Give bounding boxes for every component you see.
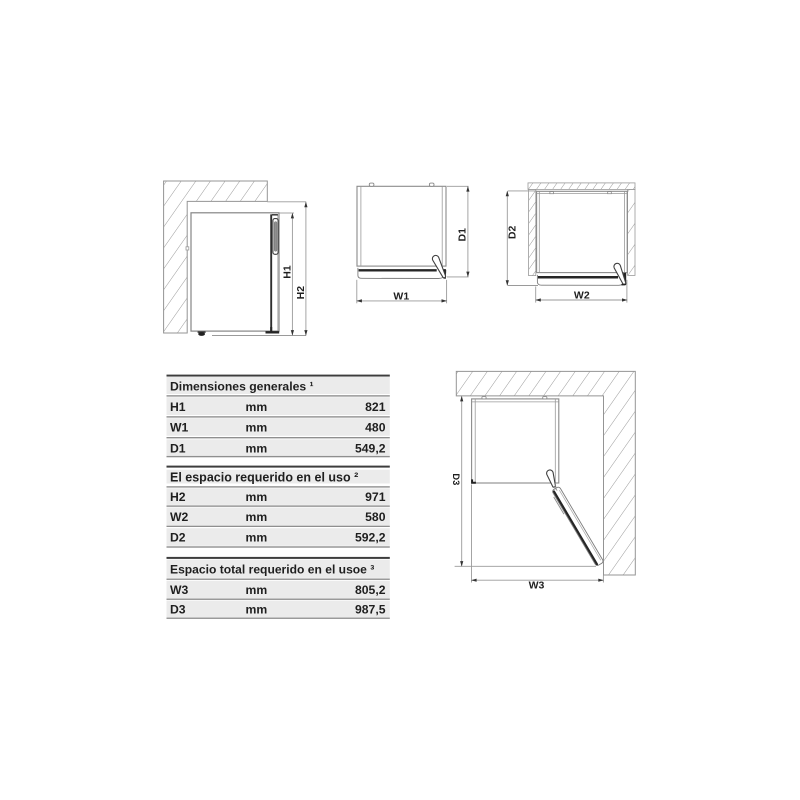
svg-text:592,2: 592,2 <box>355 531 386 545</box>
svg-text:mm: mm <box>246 490 268 504</box>
svg-text:W2: W2 <box>170 510 189 524</box>
svg-text:549,2: 549,2 <box>355 441 386 455</box>
svg-text:mm: mm <box>246 421 268 435</box>
svg-text:H2: H2 <box>295 286 307 300</box>
svg-text:mm: mm <box>246 531 268 545</box>
svg-text:mm: mm <box>246 583 268 597</box>
svg-text:480: 480 <box>365 421 386 435</box>
svg-text:mm: mm <box>246 441 268 455</box>
svg-text:805,2: 805,2 <box>355 583 386 597</box>
svg-text:mm: mm <box>246 510 268 524</box>
svg-text:Espacio total requerido en el: Espacio total requerido en el usoe ³ <box>170 563 374 577</box>
svg-text:D2: D2 <box>170 531 186 545</box>
svg-text:D3: D3 <box>451 473 461 485</box>
svg-text:821: 821 <box>365 400 386 414</box>
svg-text:W3: W3 <box>529 579 545 591</box>
svg-text:971: 971 <box>365 490 386 504</box>
svg-text:987,5: 987,5 <box>355 603 386 617</box>
svg-text:W1: W1 <box>393 290 409 302</box>
svg-text:D3: D3 <box>170 603 186 617</box>
svg-text:mm: mm <box>246 603 268 617</box>
svg-text:580: 580 <box>365 510 386 524</box>
svg-text:W1: W1 <box>170 421 189 435</box>
svg-text:H2: H2 <box>170 490 186 504</box>
svg-text:D1: D1 <box>170 441 186 455</box>
svg-text:W3: W3 <box>170 583 189 597</box>
svg-text:W2: W2 <box>574 289 590 301</box>
svg-text:D2: D2 <box>506 226 518 240</box>
svg-text:mm: mm <box>246 400 268 414</box>
svg-text:El espacio requerido en el uso: El espacio requerido en el uso ² <box>170 471 358 485</box>
svg-text:H1: H1 <box>282 265 294 279</box>
svg-text:D1: D1 <box>457 228 469 242</box>
svg-text:H1: H1 <box>170 400 186 414</box>
svg-text:Dimensiones generales ¹: Dimensiones generales ¹ <box>170 379 314 393</box>
